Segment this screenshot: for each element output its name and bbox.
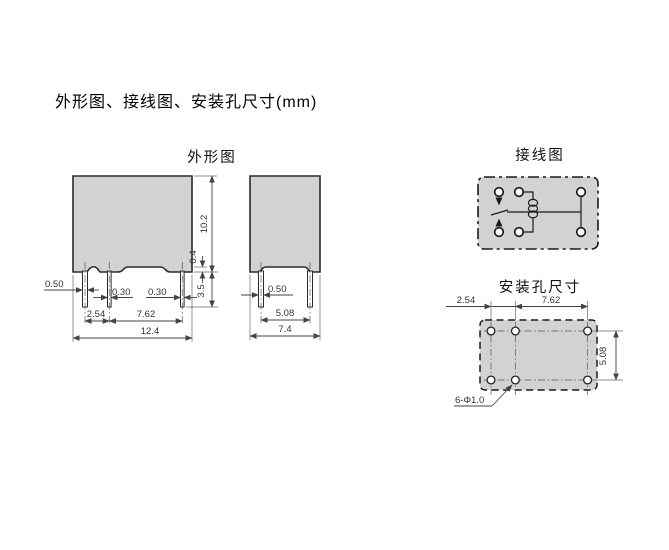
- mounting-hole: [512, 376, 520, 384]
- dim-pin2-width: 0.30: [93, 287, 133, 298]
- terminal-bottom-right: [577, 228, 586, 237]
- dim-standoff-height-text: 0.4: [188, 250, 199, 263]
- dim-pin-length: 3.5: [186, 272, 218, 307]
- mounting-hole: [487, 327, 495, 335]
- dim-side-pin-spacing: 5.08: [261, 308, 310, 320]
- mounting-figure-label: 安装孔尺寸: [499, 279, 582, 296]
- mounting-hole: [487, 376, 495, 384]
- side-view: 0.50 5.08 7.4: [241, 176, 320, 340]
- dim-col-spacing-1: 2.54: [446, 295, 515, 307]
- dim-pin3-width: 0.30: [146, 287, 197, 298]
- dim-overall-depth-text: 7.4: [278, 324, 291, 335]
- dim-pin-length-text: 3.5: [196, 284, 207, 297]
- wiring-figure-label: 接线图: [515, 147, 565, 164]
- mounting-hole-diagram: 安装孔尺寸 2.54 7.62: [446, 279, 623, 406]
- terminal-top-right: [577, 188, 586, 197]
- outline-figure-label: 外形图: [187, 149, 237, 166]
- relay-body-front: [73, 176, 192, 272]
- terminal-bottom-mid: [515, 228, 524, 237]
- dim-side-pin-spacing-text: 5.08: [276, 308, 295, 319]
- wiring-diagram: 接线图: [478, 147, 598, 249]
- dim-side-pin-width: 0.50: [241, 284, 293, 295]
- dim-pin1-width: 0.50: [44, 279, 99, 290]
- dim-col-spacing-1-text: 2.54: [457, 295, 476, 306]
- hole-note-text: 6-Φ1.0: [455, 395, 484, 406]
- dim-pin-spacing-1: 2.54: [85, 309, 109, 321]
- dim-col-spacing-2: 7.62: [515, 295, 587, 307]
- datasheet-page: 外形图、接线图、安装孔尺寸(mm) 外形图 0.50: [0, 0, 669, 550]
- dim-pin3-width-text: 0.30: [148, 287, 167, 298]
- mounting-hole: [584, 376, 592, 384]
- mounting-hole: [512, 327, 520, 335]
- mounting-plate: [480, 320, 597, 390]
- relay-body-side: [250, 176, 320, 272]
- dim-pin2-width-text: 0.30: [112, 287, 131, 298]
- dim-row-spacing-text: 5.08: [598, 347, 609, 366]
- dim-pin1-width-text: 0.50: [45, 279, 64, 290]
- dim-pin-spacing-2-text: 7.62: [137, 309, 156, 320]
- drawing-canvas: 外形图 0.50 0.30 0.30: [0, 0, 669, 550]
- mounting-hole: [584, 327, 592, 335]
- dim-col-spacing-2-text: 7.62: [542, 295, 561, 306]
- dim-overall-width-text: 12.4: [141, 326, 160, 337]
- dim-pin-spacing-1-text: 2.54: [87, 309, 106, 320]
- dim-pin-spacing-2: 7.62: [109, 309, 182, 321]
- terminal-top-left: [495, 188, 504, 197]
- dim-side-pin-width-text: 0.50: [268, 284, 287, 295]
- dim-body-height-text: 10.2: [199, 215, 210, 234]
- front-view: 外形图 0.50 0.30 0.30: [44, 149, 237, 342]
- terminal-bottom-left: [495, 228, 504, 237]
- terminal-top-mid: [515, 188, 524, 197]
